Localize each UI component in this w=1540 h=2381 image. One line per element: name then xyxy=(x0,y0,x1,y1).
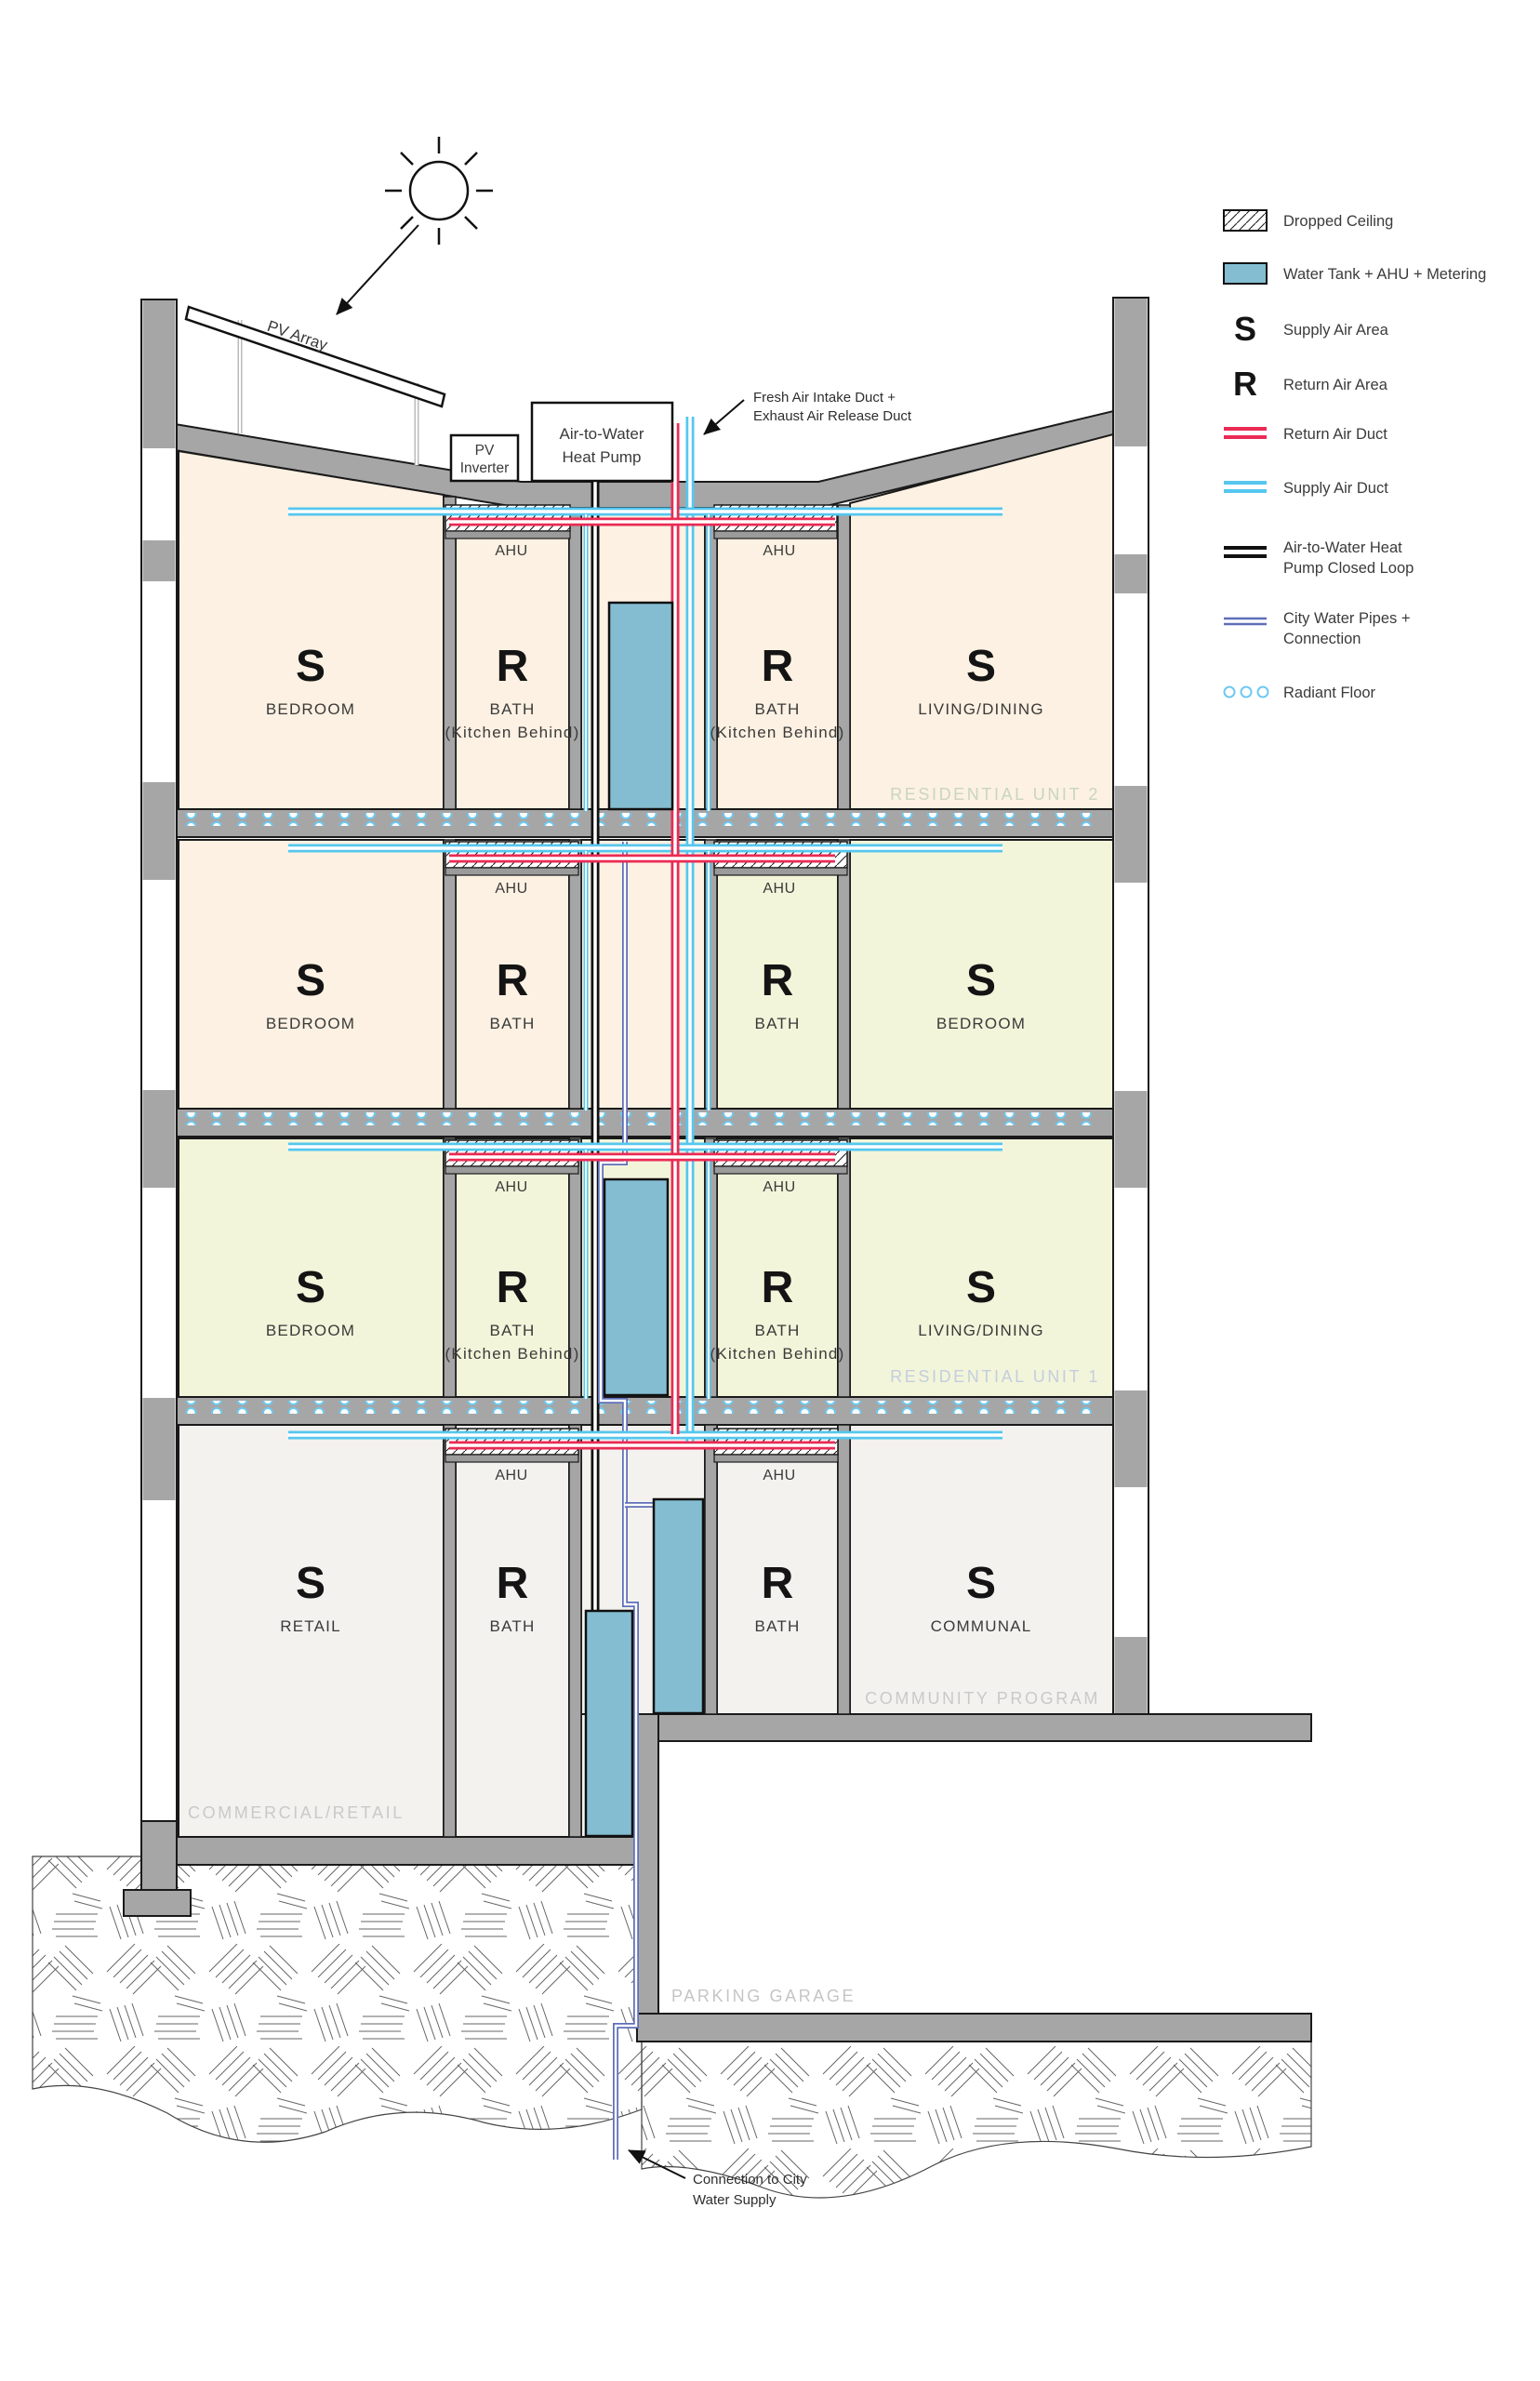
unit-1-label: RESIDENTIAL UNIT 1 xyxy=(890,1367,1100,1386)
room-name: BATH xyxy=(755,700,801,718)
right-wall-segment xyxy=(1115,1091,1148,1188)
partition xyxy=(838,505,850,809)
left-wall-stem xyxy=(141,1821,177,1892)
annotation-fresh-air: Fresh Air Intake Duct + Exhaust Air Rele… xyxy=(704,390,912,434)
room-letter: R xyxy=(497,1263,529,1312)
fresh-air-label: Fresh Air Intake Duct + xyxy=(753,390,896,406)
right-wall-segment xyxy=(1115,786,1148,883)
room-letter: S xyxy=(966,956,996,1005)
partition xyxy=(838,840,850,1109)
city-water-label: Water Supply xyxy=(693,2192,777,2208)
partition xyxy=(569,508,581,809)
room-name: BATH xyxy=(490,1617,536,1635)
room-name: LIVING/DINING xyxy=(918,700,1044,718)
left-wall-segment xyxy=(143,1090,176,1188)
partition xyxy=(569,1425,581,1837)
building-section-diagram: Air-to-Water Heat Pump PV Inverter PV Ar… xyxy=(0,0,1540,2381)
partition xyxy=(444,840,456,1109)
legend-item-supply-duct: Supply Air Duct xyxy=(1224,480,1388,497)
ahu-label: AHU xyxy=(495,881,527,897)
legend-item-supply-area: S Supply Air Area xyxy=(1234,310,1389,348)
legend-symbol-s: S xyxy=(1234,310,1256,348)
room-name: BEDROOM xyxy=(936,1015,1026,1032)
ahu-label: AHU xyxy=(763,881,795,897)
legend-symbol-r: R xyxy=(1233,365,1257,403)
water-tank xyxy=(609,603,672,809)
legend-label: Air-to-Water Heat xyxy=(1283,539,1402,556)
room-name: BEDROOM xyxy=(266,700,355,718)
room-name: BATH xyxy=(755,1617,801,1635)
room-letter: R xyxy=(497,642,529,691)
legend-label: Connection xyxy=(1283,631,1361,647)
ground-slab-left xyxy=(141,1837,642,1865)
room-letter: S xyxy=(296,642,325,691)
left-wall-footing xyxy=(124,1890,191,1916)
partition xyxy=(569,840,581,1109)
room-letter: S xyxy=(296,1559,325,1608)
legend-item-radiant-floor: Radiant Floor xyxy=(1225,685,1376,701)
room-name: (Kitchen Behind) xyxy=(710,1345,845,1363)
room-letter: R xyxy=(497,956,529,1005)
right-wall-segment xyxy=(1115,554,1148,593)
city-water-label: Connection to City xyxy=(693,2172,807,2188)
right-wall-segment xyxy=(1115,299,1148,446)
ahu-label: AHU xyxy=(763,1468,795,1483)
ahu-label: AHU xyxy=(763,1179,795,1195)
room-name: (Kitchen Behind) xyxy=(710,724,845,741)
commercial-retail-label: COMMERCIAL/RETAIL xyxy=(188,1803,405,1822)
room-name: BEDROOM xyxy=(266,1015,355,1032)
room-name: COMMUNAL xyxy=(931,1617,1032,1635)
legend-item-heat-pump-loop: Air-to-Water Heat Pump Closed Loop xyxy=(1224,539,1414,577)
legend-label: Return Air Duct xyxy=(1283,426,1387,443)
ahu-label: AHU xyxy=(763,543,795,559)
architectural-section-page: Air-to-Water Heat Pump PV Inverter PV Ar… xyxy=(0,0,1540,2381)
pv-inverter-label: Inverter xyxy=(460,460,510,476)
right-wall-segment xyxy=(1115,1637,1148,1713)
parking-garage-label: PARKING GARAGE xyxy=(671,1987,856,2005)
room-letter: R xyxy=(762,956,794,1005)
partition xyxy=(838,1425,850,1714)
room-letter: S xyxy=(966,1559,996,1608)
sun-icon xyxy=(337,137,493,314)
garage-left-wall xyxy=(637,1714,658,2042)
left-wall-glazing xyxy=(141,299,177,1821)
right-wall-segment xyxy=(1115,1390,1148,1487)
room-letter: R xyxy=(762,1263,794,1312)
water-tank xyxy=(604,1179,668,1395)
sun-to-pv-arrow xyxy=(337,225,418,314)
fresh-air-label: Exhaust Air Release Duct xyxy=(753,408,912,424)
legend-label: Water Tank + AHU + Metering xyxy=(1283,266,1486,283)
legend-item-water-tank: Water Tank + AHU + Metering xyxy=(1224,263,1486,284)
pv-inverter-label: PV xyxy=(475,443,495,459)
right-wall-glazing xyxy=(1113,298,1148,1714)
room-letter: R xyxy=(762,1559,794,1608)
room-name: BATH xyxy=(490,1015,536,1032)
legend-label: City Water Pipes + xyxy=(1283,610,1410,627)
room-name: (Kitchen Behind) xyxy=(445,724,580,741)
room-name: BATH xyxy=(490,1322,536,1339)
left-wall-segment xyxy=(143,300,176,448)
heat-pump-label: Heat Pump xyxy=(562,448,641,466)
legend-label: Supply Air Duct xyxy=(1283,480,1388,497)
room-name: LIVING/DINING xyxy=(918,1322,1044,1339)
garage-floor-slab xyxy=(637,2014,1311,2042)
room-name: RETAIL xyxy=(280,1617,340,1635)
legend-item-dropped-ceiling: Dropped Ceiling xyxy=(1224,210,1393,231)
legend-item-return-area: R Return Air Area xyxy=(1233,365,1388,403)
left-wall-segment xyxy=(143,540,176,581)
ahu-label: AHU xyxy=(495,1179,527,1195)
partition xyxy=(444,497,456,809)
legend-label: Return Air Area xyxy=(1283,377,1388,393)
unit-2-label: RESIDENTIAL UNIT 2 xyxy=(890,785,1100,804)
community-program-label: COMMUNITY PROGRAM xyxy=(865,1689,1100,1708)
radiant-floor-row xyxy=(184,1112,1107,1125)
legend-label: Radiant Floor xyxy=(1283,685,1376,701)
radiant-floor-row xyxy=(184,813,1107,826)
room-name: (Kitchen Behind) xyxy=(445,1345,580,1363)
room-letter: S xyxy=(296,1263,325,1312)
water-tank xyxy=(654,1499,703,1713)
room-name: BATH xyxy=(490,700,536,718)
legend-item-return-duct: Return Air Duct xyxy=(1224,426,1387,443)
legend-label: Pump Closed Loop xyxy=(1283,560,1414,577)
room-letter: S xyxy=(966,1263,996,1312)
ahu-label: AHU xyxy=(495,543,527,559)
partition xyxy=(705,1425,717,1714)
legend: Dropped Ceiling Water Tank + AHU + Meter… xyxy=(1224,210,1486,701)
heat-pump-label: Air-to-Water xyxy=(560,425,644,443)
legend-label: Dropped Ceiling xyxy=(1283,213,1393,230)
legend-label: Supply Air Area xyxy=(1283,322,1389,339)
room-name: BATH xyxy=(755,1015,801,1032)
legend-item-city-water: City Water Pipes + Connection xyxy=(1224,610,1410,647)
left-wall-segment xyxy=(143,1398,176,1500)
left-wall-segment xyxy=(143,782,176,880)
room-letter: R xyxy=(497,1559,529,1608)
room-f1-bedroom xyxy=(179,451,444,809)
pv-array-panel xyxy=(186,307,445,406)
ground-slab-right xyxy=(642,1714,1311,1741)
room-letter: S xyxy=(296,956,325,1005)
room-name: BATH xyxy=(755,1322,801,1339)
water-tank xyxy=(586,1611,632,1836)
radiant-floor-row xyxy=(184,1401,1107,1414)
room-letter: R xyxy=(762,642,794,691)
room-name: BEDROOM xyxy=(266,1322,355,1339)
room-letter: S xyxy=(966,642,996,691)
ahu-label: AHU xyxy=(495,1468,527,1483)
partition xyxy=(444,1425,456,1837)
